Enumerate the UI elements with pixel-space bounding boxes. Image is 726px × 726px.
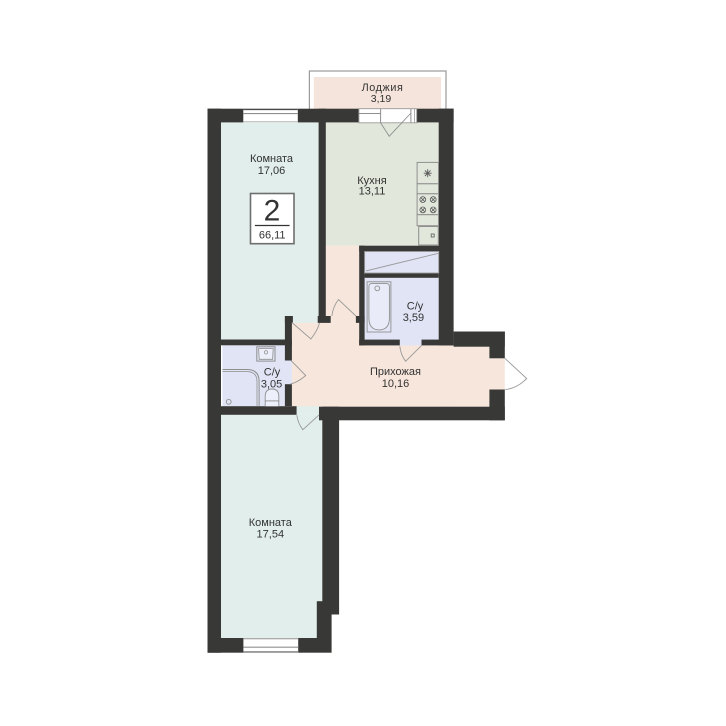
svg-text:17,06: 17,06: [258, 165, 286, 177]
svg-text:3,59: 3,59: [403, 312, 424, 324]
svg-text:2: 2: [264, 194, 281, 227]
svg-text:10,16: 10,16: [382, 378, 410, 390]
svg-text:17,54: 17,54: [257, 529, 285, 541]
svg-text:3,19: 3,19: [371, 93, 392, 105]
svg-text:3,05: 3,05: [261, 379, 282, 391]
svg-text:Комната: Комната: [250, 153, 294, 165]
svg-text:С/у: С/у: [264, 367, 281, 379]
svg-text:13,11: 13,11: [359, 186, 386, 198]
svg-text:Прихожая: Прихожая: [370, 366, 421, 378]
svg-text:66,11: 66,11: [259, 230, 286, 242]
svg-text:С/у: С/у: [407, 300, 424, 312]
svg-text:Комната: Комната: [249, 517, 293, 529]
